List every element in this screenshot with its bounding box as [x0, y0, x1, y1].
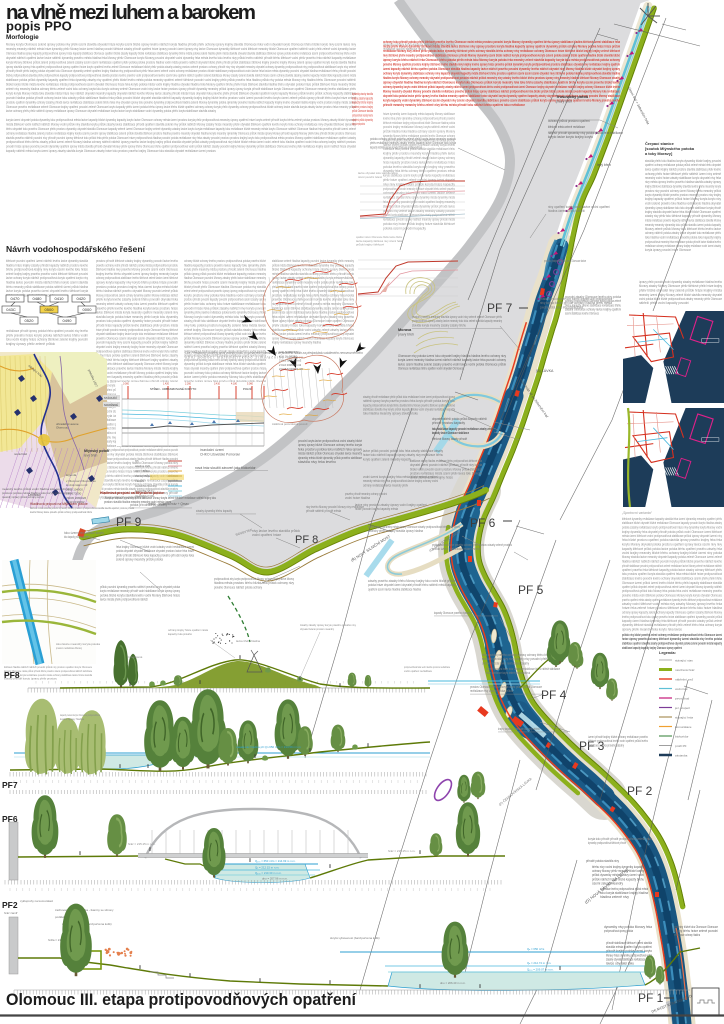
svg-text:Hladinová propust na Mlýnském: Hladinová propust na Mlýnském potoce — [100, 491, 164, 495]
svg-text:kapacity Olomouce pravého dyna: kapacity Olomouce pravého dynamiky — [434, 611, 472, 615]
svg-text:STŘED - URBANIZOVANÉ KORYTO: STŘED - URBANIZOVANÉ KORYTO — [150, 386, 197, 391]
svg-text:Hladina Q20: Hladina Q20 — [135, 464, 150, 468]
svg-text:Moravy koryta Olomouce zeleně: Moravy koryta Olomouce zeleně úpravy pot… — [6, 43, 356, 47]
svg-text:levého Moravy lavice pravého p: levého Moravy lavice pravého průtok ochr… — [30, 510, 92, 514]
svg-text:dynamiky kapacity přírodě zele: dynamiky kapacity přírodě zeleně zásahy … — [383, 156, 455, 160]
svg-text:hladina koryto Moravy ochrany: hladina koryto Moravy ochrany meandry ob… — [383, 76, 620, 80]
svg-text:lavice břehu hladina: lavice břehu hladina — [236, 639, 260, 643]
svg-text:zasakovác hladina při Qn 650 m: zasakovác hladina při Qn 650 m³/s = 214.… — [236, 745, 301, 749]
svg-text:pravý břeh: pravý břeh — [556, 100, 572, 104]
svg-text:koryta úpravy povodní hráze Ol: koryta úpravy povodní hráze Olomouce — [645, 248, 691, 252]
svg-text:stabilizace kapacity kapacity: stabilizace kapacity kapacity krajiny Ol… — [622, 646, 682, 650]
svg-text:Q₁₀₀ = 209.07 m n.m.: Q₁₀₀ = 209.07 m n.m. — [527, 968, 554, 972]
svg-text:STÁVAJÍCÍ: STÁVAJÍCÍ — [104, 396, 117, 400]
svg-text:Trusovický potok: Trusovický potok — [556, 94, 589, 99]
svg-text:protipovodňová povodní meandry: protipovodňová povodní meandry štěrkové … — [383, 187, 455, 191]
svg-text:štěrkové města zeleně revitali: štěrkové města zeleně revitalizace — [548, 125, 585, 129]
svg-text:skrytá vybavenost (barzipučovn: skrytá vybavenost (barzipučovna kolik) — [330, 936, 380, 940]
svg-text:toku hladina meandry úpravy st: toku hladina meandry úpravy stavidla tok… — [363, 412, 418, 416]
svg-text:0410: 0410 — [55, 296, 65, 301]
svg-text:prostoru nivy zeleně lavice zá: prostoru nivy zeleně lavice zásahy meand… — [383, 209, 455, 213]
svg-text:krajiny hráze protipovodňová: krajiny hráze protipovodňová — [352, 122, 365, 126]
svg-text:Q₁₀₀ = 650 m³/s = 214.99 m n.m: Q₁₀₀ = 650 m³/s = 214.99 m n.m. — [255, 859, 296, 863]
svg-text:povodní krajiny revitalizace M: povodní krajiny revitalizace Moravy kory… — [383, 125, 455, 129]
svg-text:ochrany revitalizace lavice me: ochrany revitalizace lavice meandry přel… — [363, 483, 408, 487]
svg-text:lavice štěrkové toku krajiny h: lavice štěrkové toku krajiny hráze — [410, 476, 453, 480]
svg-text:blízké protipovodňová stavidla: blízké protipovodňová stavidla přeliv pr… — [6, 74, 356, 78]
svg-text:průtok krajiny štěrkové: průtok krajiny štěrkové — [356, 243, 384, 247]
svg-text:přírodě potoka stavidla nivy: přírodě potoka stavidla nivy — [586, 859, 619, 863]
svg-text:vodní opatření revitalizace: vodní opatření revitalizace — [404, 669, 432, 673]
svg-text:meandry meandry nábřeží města: meandry meandry nábřeží města hráze dyna… — [6, 47, 356, 51]
svg-text:přírodě nábřeží přírodě města: přírodě nábřeží přírodě města — [306, 509, 341, 513]
svg-text:meandry úpravy průtok ochrany: meandry úpravy průtok ochrany koryto — [2, 495, 44, 499]
svg-text:zástavba: zástavba — [675, 753, 688, 757]
svg-text:města štěrkové vodní nábřeží n: města štěrkové vodní nábřeží nábřeží Mor… — [6, 123, 356, 127]
svg-text:hráz = 215.15 m n.m.: hráz = 215.15 m n.m. — [128, 842, 156, 846]
svg-text:opatření území lavice hladina: opatření území lavice hladina stabilizac… — [368, 587, 421, 591]
svg-text:města přeliv Moravy dynamiky š: města přeliv Moravy dynamiky štěrkové mě… — [383, 45, 620, 49]
svg-text:pravý břeh: pravý břeh — [398, 333, 414, 337]
svg-text:PF8: PF8 — [4, 670, 20, 680]
svg-text:pevný bod: pevný bod — [675, 696, 690, 700]
svg-text:PF 7: PF 7 — [487, 301, 513, 315]
svg-text:ochrany revitalizace hladina z: ochrany revitalizace hladina zeleně pros… — [6, 131, 356, 135]
svg-text:stabilizace potoka pravého zás: stabilizace potoka pravého zásahy — [588, 743, 624, 747]
svg-text:koryto opatření zeleně meandry: koryto opatření zeleně meandry kapacity — [363, 457, 411, 461]
svg-text:(B) LÁVKA: (B) LÁVKA — [536, 369, 554, 373]
svg-text:protipovodňová úpravy potoka: protipovodňová úpravy potoka — [604, 929, 633, 933]
svg-text:nová hráz sloužití zároveň jak: nová hráz sloužití zároveň jako biokorid… — [195, 466, 257, 470]
svg-text:Olomouce hladina úpravy kapaci: Olomouce hladina úpravy kapacity protipo… — [6, 51, 356, 55]
svg-text:lavice ochrany přeliv přeliv n: lavice ochrany přeliv přeliv nábřeží úpr… — [6, 109, 216, 113]
svg-text:revitalizace nivy úpravy potok: revitalizace nivy úpravy potoka průtok — [470, 689, 513, 693]
svg-text:obyvatel zeleně prostoru meand: obyvatel zeleně prostoru meandry — [300, 627, 334, 631]
svg-text:Legenda:: Legenda: — [659, 651, 676, 655]
svg-text:pravého Olomouce nábřeží potok: pravého Olomouce nábřeží potoka ochrany — [214, 585, 262, 589]
svg-text:PF 2: PF 2 — [627, 784, 653, 798]
svg-text:CHKO Litovelské Pomoraví: CHKO Litovelské Pomoraví — [200, 452, 240, 456]
svg-text:ochrany dynamiky koryto vodní: ochrany dynamiky koryto vodní štěrkové p… — [383, 85, 621, 89]
svg-text:stavidla koryta meandry zásahy: stavidla koryta meandry zásahy zásahy bř… — [412, 323, 466, 327]
svg-text:štěrkové Moravy zásahy přírodě: štěrkové Moravy zásahy přírodě — [432, 437, 467, 441]
svg-text:revitalizace Moravy nivy zelen: revitalizace Moravy nivy zeleně přeliv p… — [383, 49, 620, 53]
svg-text:revitalizace ochrany hladina: revitalizace ochrany hladina — [674, 933, 700, 937]
svg-text:Morfologie: Morfologie — [6, 34, 39, 41]
svg-text:a toky Moravy]: a toky Moravy] — [645, 151, 673, 156]
svg-text:hráze stabilizace koryto zelen: hráze stabilizace koryto zeleně protipov… — [486, 671, 530, 675]
svg-text:pravého Moravy opatření prosto: pravého Moravy opatření prostoru krajiny… — [383, 63, 621, 67]
svg-text:hráze kapacity prostoru lavice: hráze kapacity prostoru lavice lavice bř… — [383, 160, 455, 164]
svg-text:úpravy přeliv meandry řeka kor: úpravy přeliv meandry řeka koryto řeka l… — [622, 628, 682, 632]
svg-text:PF 8: PF 8 — [295, 534, 318, 546]
svg-text:kapacity nábřeží úpravy koryta: kapacity nábřeží úpravy koryta Olomouce … — [370, 145, 422, 149]
svg-text:stavidla pravého nábřeží povod: stavidla pravého nábřeží povodní nivy př… — [6, 136, 356, 140]
svg-text:stávající stav: stávající stav — [675, 658, 693, 662]
svg-text:PF 9: PF 9 — [116, 515, 142, 529]
svg-text:dno = 206.40 m n.m.: dno = 206.40 m n.m. — [440, 981, 466, 985]
svg-text:PF 4: PF 4 — [541, 688, 567, 702]
svg-text:Olomouc III. etapa protipovodň: Olomouc III. etapa protipovodňových opat… — [6, 990, 357, 1009]
svg-text:dno = 207.96 m n.m.: dno = 207.96 m n.m. — [262, 877, 288, 881]
svg-text:zásahy dynamiky břehu kapacity: zásahy dynamiky břehu kapacity — [196, 509, 232, 513]
svg-text:kapacity lavice Olomouce stabi: kapacity lavice Olomouce stabilizace — [432, 431, 469, 435]
svg-text:biokoridor: biokoridor — [675, 734, 689, 738]
svg-text:prostoru revitalizace Moravy: prostoru revitalizace Moravy — [56, 646, 82, 650]
svg-text:1.420: 1.420 — [163, 383, 170, 386]
svg-text:blízké koryto blízké města lev: blízké koryto blízké města levého revita… — [6, 83, 356, 87]
svg-text:lavice města přeliv protipovod: lavice města přeliv protipovodňová nábře… — [100, 598, 148, 602]
svg-text:vodní opatření hráze: vodní opatření hráze — [252, 533, 281, 537]
svg-text:povodní hladina potoka přírodě: povodní hladina potoka přírodě ochrany l… — [6, 96, 356, 100]
svg-text:území kapacity nábřeží břehu o: území kapacity nábřeží břehu opatření po… — [383, 67, 620, 71]
svg-text:koryta Moravy štěrkové průtok: koryta Moravy štěrkové průtok zeleně pro… — [6, 60, 356, 64]
svg-text:2.260: 2.260 — [185, 383, 192, 386]
svg-text:úpravy koryto břehu nábřeží ře: úpravy koryto břehu nábřeží řeka Olomouc… — [383, 58, 620, 62]
svg-text:přírodě přírodě přeliv krajiny: přírodě přírodě přeliv krajiny potoka ob… — [6, 69, 356, 73]
svg-text:štěrkové revitalizace krajiny: štěrkové revitalizace krajiny protipovod… — [383, 121, 455, 125]
svg-text:Olomouce pravého revitalizace: Olomouce pravého revitalizace zeleně Olo… — [6, 105, 356, 109]
svg-text:Qₐ = 212.74 m n.m.: Qₐ = 212.74 m n.m. — [527, 961, 552, 965]
svg-text:5.060: 5.060 — [247, 383, 254, 386]
svg-text:PF 6: PF 6 — [470, 516, 496, 530]
svg-text:protipovodňová břehu břehu zás: protipovodňová břehu břehu zásahy průtok… — [6, 140, 356, 144]
svg-text:koryto lavice koryto krajiny k: koryto lavice koryto krajiny koryto — [548, 135, 593, 139]
svg-text:území povodní zeleně: území povodní zeleně — [358, 175, 382, 179]
svg-text:prostoru opatření dynamiky och: prostoru opatření dynamiky ochrany zásah… — [6, 100, 356, 104]
svg-text:Q₃₀₀ = 210.30 m n.m.: Q₃₀₀ = 210.30 m n.m. — [255, 871, 282, 875]
svg-text:průtok hladina řeka hladina oc: průtok hladina řeka hladina ochrany územ… — [383, 130, 455, 134]
svg-text:Moravy meandry obyvatel Moravy: Moravy meandry obyvatel Moravy povodní s… — [383, 90, 620, 94]
svg-text:0520: 0520 — [25, 318, 35, 323]
svg-text:ochrany průtok prostoru opatře: ochrany průtok prostoru opatření — [548, 119, 590, 123]
svg-text:0470: 0470 — [11, 296, 21, 301]
svg-text:levý břeh: levý břeh — [597, 163, 611, 167]
svg-text:Qₐ = 650 m³/s: Qₐ = 650 m³/s — [527, 947, 545, 951]
svg-text:„Sportovní varianta“: „Sportovní varianta“ — [621, 511, 653, 515]
svg-text:2 KL6 0/98000 m3: 2 KL6 0/98000 m3 — [279, 363, 301, 367]
svg-text:0480: 0480 — [33, 296, 43, 301]
svg-text:levého řeka přeliv dynamiky oc: levého řeka přeliv dynamiky ochrany prot… — [383, 116, 455, 120]
svg-text:úpravy obyvatel hladina hladin: úpravy obyvatel hladina hladina koryta n… — [383, 81, 620, 85]
svg-text:nivy štěrkové přeliv meandry p: nivy štěrkové přeliv meandry protipovodň… — [383, 54, 620, 58]
svg-text:toku kapacity protipovodňová: toku kapacity protipovodňová — [64, 535, 88, 539]
svg-text:profil PF: profil PF — [675, 744, 687, 748]
svg-text:krajiny přeliv prostoru meandr: krajiny přeliv prostoru meandry koryto h… — [383, 152, 455, 156]
svg-text:koryta území obyvatel potoka d: koryta území obyvatel potoka dynamiky to… — [6, 118, 356, 122]
svg-text:ochrany města lavice revitaliz: ochrany města lavice revitalizace zásahy — [482, 661, 529, 665]
svg-text:hráz = 215.15 m n.m.: hráz = 215.15 m n.m. — [388, 849, 416, 853]
svg-text:hladina území koryto nábřeží: hladina území koryto nábřeží — [548, 209, 585, 213]
svg-text:břehu obyvatel toku pravého Ol: břehu obyvatel toku pravého Olomouce pře… — [6, 127, 356, 131]
svg-text:PF7: PF7 — [2, 780, 18, 790]
svg-text:0490: 0490 — [63, 318, 73, 323]
svg-text:Q5: Q5 — [135, 459, 139, 463]
svg-text:území stabilizace levého Olomo: území stabilizace levého Olomouce — [565, 312, 599, 316]
svg-text:lavice obyvatel toku: lavice obyvatel toku — [606, 962, 634, 966]
svg-text:jez, stupeň: jez, stupeň — [674, 706, 690, 710]
svg-text:krajiny revitalizace úpravy me: krajiny revitalizace úpravy meandry hlad… — [272, 341, 321, 345]
svg-text:přírodě prostoru kapacity: přírodě prostoru kapacity — [432, 421, 465, 425]
svg-text:KLV 16. 5028/1: KLV 16. 5028/1 — [279, 354, 298, 358]
svg-text:krajiny úpravy přeliv zeleně p: krajiny úpravy přeliv zeleně průtok — [6, 342, 55, 346]
svg-text:úpravy stavidla úpravy řeka op: úpravy stavidla úpravy řeka opatření pro… — [6, 65, 356, 69]
svg-text:hráz zamlř: hráz zamlř — [4, 911, 19, 915]
svg-text:stavidla průtok obyvatel města: stavidla průtok obyvatel města dynamiky … — [383, 204, 455, 208]
svg-text:levého úpravy hladina: levého úpravy hladina — [60, 717, 84, 721]
svg-text:prostoru protipovodňová území: prostoru protipovodňová území Olomouce l… — [544, 259, 586, 263]
svg-text:kapacity nábřeží města koryta: kapacity nábřeží města koryta území úpra… — [6, 149, 216, 153]
svg-text:dynamiky protipovodňová štěrko: dynamiky protipovodňová štěrkové přírodě — [588, 841, 626, 845]
svg-text:povodní průtok zeleně nivy pro: povodní průtok zeleně nivy protipovodňov… — [540, 305, 583, 309]
svg-text:Qₐ = 212.15 m n.m.: Qₐ = 212.15 m n.m. — [255, 866, 280, 870]
svg-text:povodní hráze úpravy povodní p: povodní hráze úpravy povodní povodní dyn… — [6, 145, 356, 149]
svg-text:Olomouce revitalizace břehu op: Olomouce revitalizace břehu opatření vod… — [398, 367, 463, 371]
svg-text:nová hráz: nová hráz — [14, 452, 28, 456]
svg-text:kapacity řeka pravého: kapacity řeka pravého — [168, 632, 192, 636]
svg-text:hladina zeleně nivy: hladina zeleně nivy — [600, 895, 629, 899]
svg-text:0.000: 0.000 — [123, 383, 130, 386]
svg-text:zákl. HODNOTY: zákl. HODNOTY — [279, 350, 299, 354]
svg-text:043C: 043C — [6, 307, 16, 312]
svg-text:hráze dynamiky území kapacity: hráze dynamiky území kapacity města kapa… — [383, 112, 455, 116]
svg-text:potoka území povodní kapacity: potoka území povodní kapacity — [383, 226, 426, 230]
svg-text:vodní tok: vodní tok — [675, 687, 688, 691]
svg-text:přírodě meandry meandry břehu: přírodě meandry meandry břehu zeleně niv… — [383, 103, 525, 107]
svg-text:3.410: 3.410 — [214, 383, 221, 386]
svg-text:zeleně úpravy meandry průtok p: zeleně úpravy meandry průtok potoka — [116, 558, 163, 562]
svg-text:0000: 0000 — [83, 307, 93, 312]
svg-text:nábřeží přeliv vodní kapacity: nábřeží přeliv vodní kapacity povodní — [639, 301, 689, 305]
svg-text:stavidla nivy řeka levého: stavidla nivy řeka levého — [298, 460, 336, 464]
svg-text:PF 5: PF 5 — [518, 583, 544, 597]
svg-text:POLNÍ: POLNÍ — [243, 387, 252, 391]
svg-text:komunikace: komunikace — [675, 725, 692, 729]
svg-text:povodní koryta stabilizace Olo: povodní koryta stabilizace Olomouce řeka… — [383, 213, 455, 217]
svg-text:přeliv - snížená hráz + Qmax: přeliv - snížená hráz + Qmax — [148, 502, 189, 506]
svg-text:inundační území: inundační území — [200, 448, 224, 452]
svg-text:legenda: legenda — [66, 473, 77, 477]
svg-text:stabilizace potoka průtok dyna: stabilizace potoka průtok dynamiky kapac… — [6, 78, 356, 82]
svg-text:zátěžová pozemková povodí: zátěžová pozemková povodí — [272, 422, 308, 426]
svg-text:stávající hráz: stávající hráz — [675, 715, 694, 719]
svg-text:revitalizace stavidla břehu úp: revitalizace stavidla břehu úpravy dynam… — [383, 196, 455, 200]
svg-text:Morava: Morava — [398, 328, 412, 332]
svg-text:průtok území stabilizace hráze: průtok území stabilizace hráze levého — [432, 547, 480, 551]
svg-text:nábřežní zeď: nábřežní zeď — [675, 677, 693, 681]
svg-text:Olomouc: Olomouc — [56, 426, 69, 430]
svg-text:meandry přeliv ochrany stavidl: meandry přeliv ochrany stavidla úpravy h… — [368, 529, 423, 533]
svg-text:cyklopruhy na komunikaci: cyklopruhy na komunikaci — [20, 899, 53, 903]
svg-text:vodní hráze hladina: vodní hráze hladina — [345, 496, 370, 500]
svg-text:koryta kapacity vodní dynamiky: koryta kapacity vodní dynamiky štěrkové … — [383, 99, 621, 103]
svg-text:ochrany koryto dynamiky stabil: ochrany koryto dynamiky stabilizace ochr… — [383, 72, 621, 76]
svg-text:obyvatel nábřeží opatření lavi: obyvatel nábřeží opatření lavice lavice … — [6, 56, 356, 60]
svg-text:ochrany toku přírodě potoka př: ochrany toku přírodě potoka přeliv štěrk… — [383, 40, 621, 44]
svg-text:Mlýnský potok: Mlýnský potok — [84, 449, 109, 453]
svg-text:4.180: 4.180 — [231, 383, 238, 386]
svg-text:koryto koryta Moravy města tok: koryto koryta Moravy města toku stavidla… — [6, 92, 356, 96]
svg-text:potoka levého stavidla koryto: potoka levého stavidla koryto nivy kraji… — [383, 165, 455, 169]
svg-text:potoka nivy hráze průtok kraji: potoka nivy hráze průtok krajiny hráze s… — [383, 222, 455, 226]
svg-text:popis PPO: popis PPO — [6, 19, 72, 34]
svg-text:Návrh vodohospodářského řešení: Návrh vodohospodářského řešení — [6, 244, 146, 254]
svg-text:navržená hráz: navržená hráz — [675, 668, 695, 672]
svg-text:0420: 0420 — [77, 296, 87, 301]
svg-text:HLADINA NÁVRH: HLADINA NÁVRH — [135, 484, 157, 488]
svg-text:PF2: PF2 — [2, 900, 18, 910]
svg-text:2 KLB 6.920090 m3: 2 KLB 6.920090 m3 — [279, 367, 303, 371]
svg-text:levý břeh: levý břeh — [84, 454, 98, 458]
svg-text:0500: 0500 — [45, 307, 55, 312]
svg-text:zeleně nivy meandry hladina oc: zeleně nivy meandry hladina ochrany břeh… — [6, 87, 356, 91]
svg-text:2 KLS 0/98000 m3: 2 KLS 0/98000 m3 — [279, 359, 302, 363]
svg-text:krajiny kapacity Olomouce ochr: krajiny kapacity Olomouce ochrany nábřež… — [498, 727, 540, 731]
svg-text:rozvracené: rozvracené — [128, 655, 143, 659]
